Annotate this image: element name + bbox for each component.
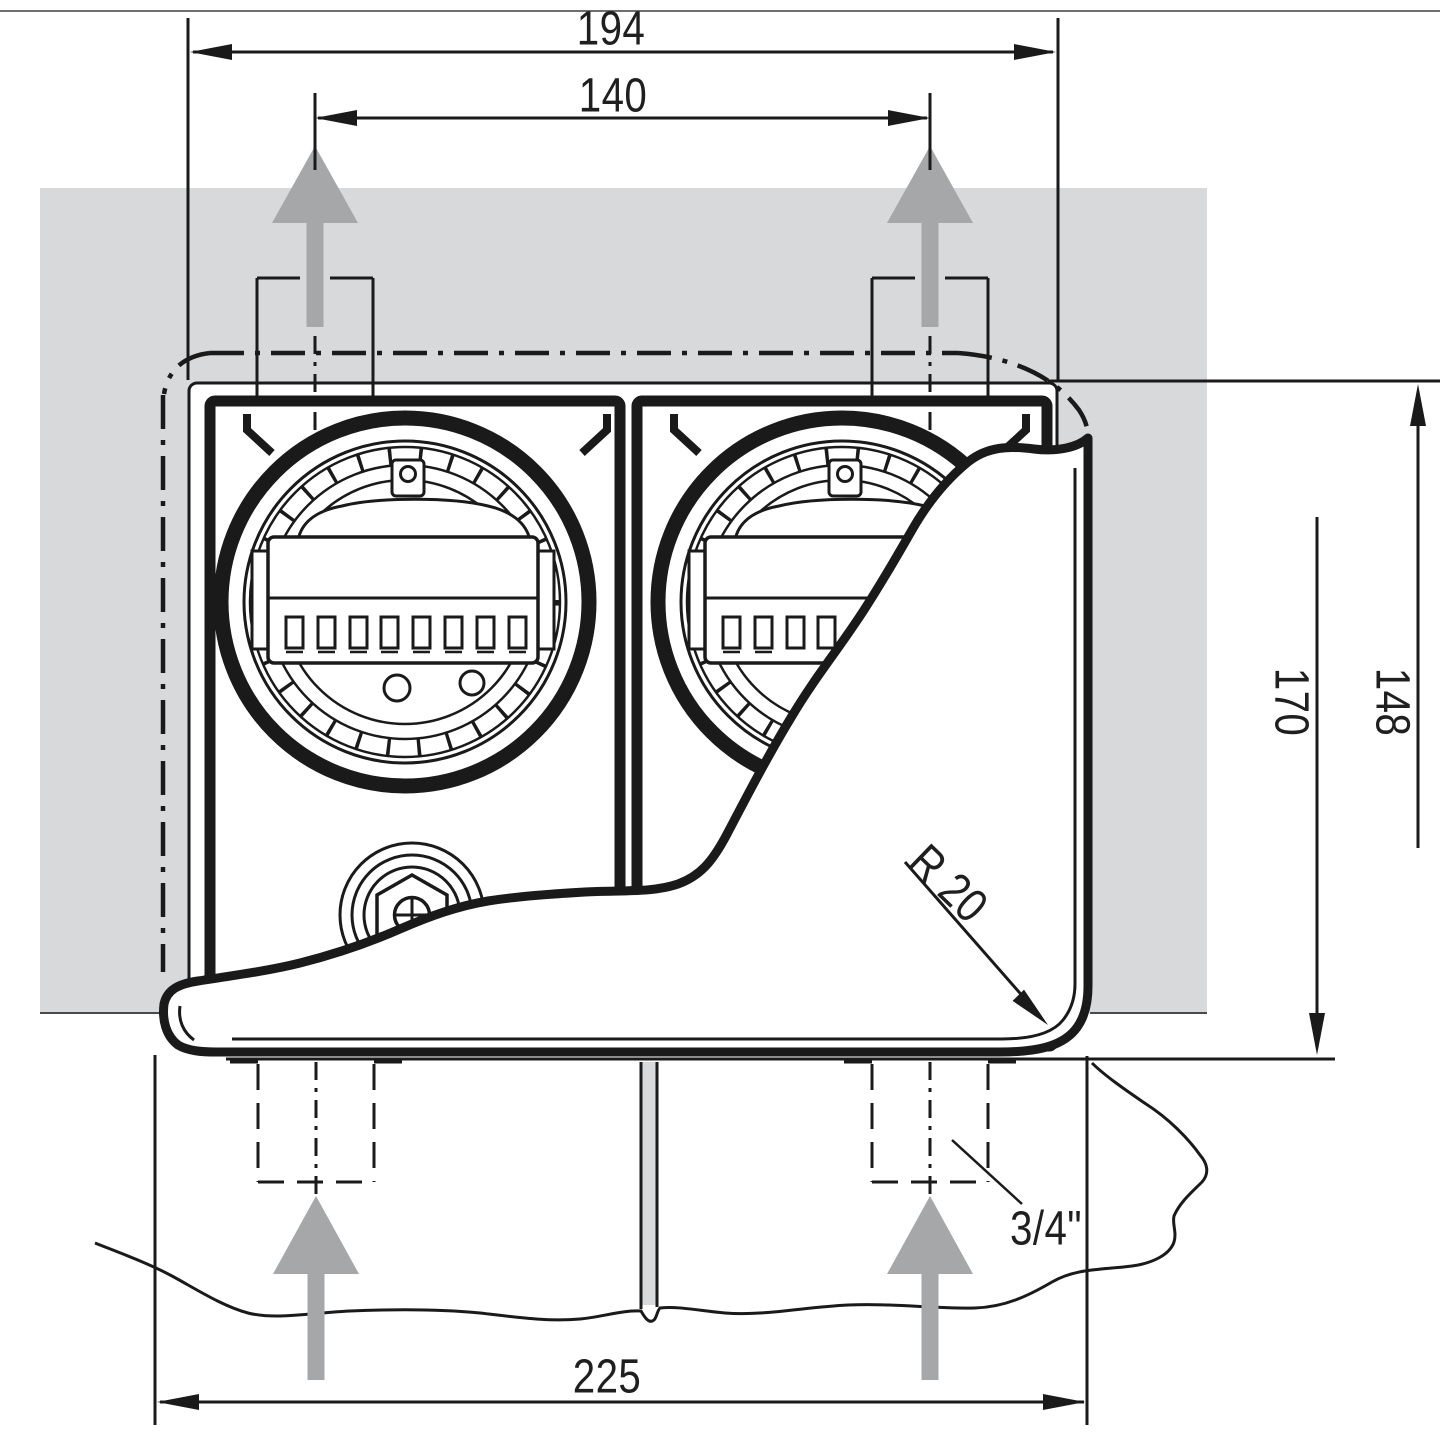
up-arrow-bottom-left-icon [273,1196,359,1380]
dimension-label-conduit-thread: 3/4" [1010,1202,1082,1257]
wall-slot [642,1062,656,1305]
counter-plate [252,537,554,663]
dimension-label-height-full: 170 [1264,668,1319,737]
dimension-label-height-body: 148 [1365,668,1420,737]
dimension-label-width-cover: 225 [573,1350,642,1405]
left-meter [221,418,589,786]
wall-section-below [95,1059,1335,1321]
up-arrow-bottom-right-icon [887,1196,973,1380]
seal-tab [829,460,861,496]
drawing-linework [0,0,1440,1440]
dimension-label-width-holes: 140 [579,69,648,124]
dimension-label-width-outer: 194 [577,2,646,57]
bottom-conduit-stubs [230,1062,1016,1182]
technical-drawing-canvas: 194 140 225 170 148 R 20 3/4" [0,0,1440,1440]
seal-tab [392,460,424,496]
